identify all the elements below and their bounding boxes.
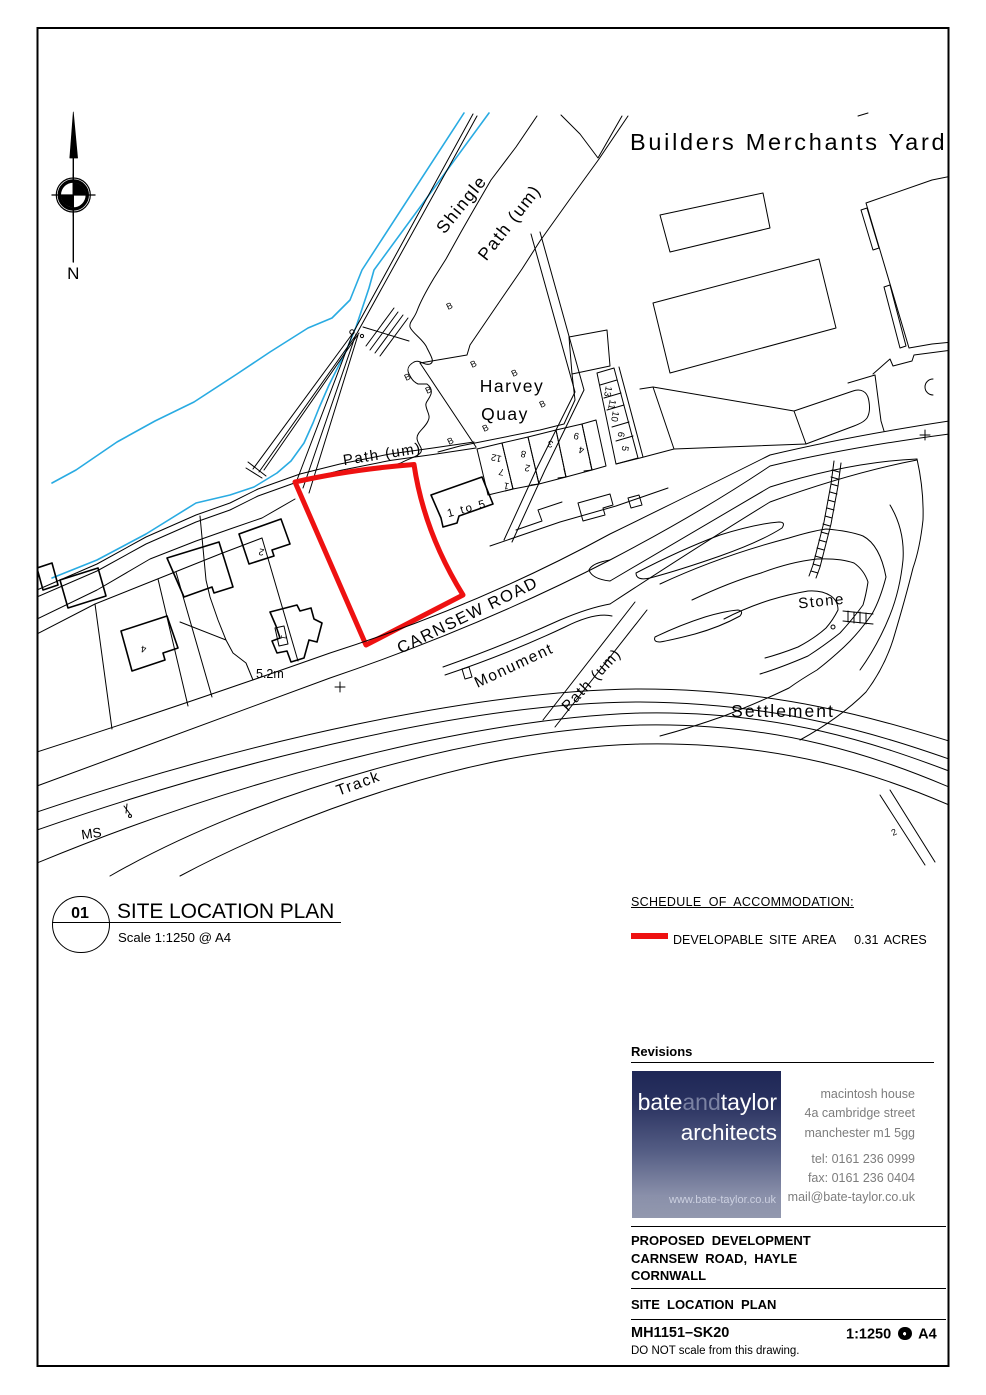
svg-text:11: 11: [605, 399, 618, 411]
svg-text:Monument: Monument: [472, 640, 556, 691]
svg-text:2: 2: [258, 546, 265, 558]
svg-text:B: B: [424, 384, 434, 396]
svg-text:Track: Track: [334, 768, 383, 800]
svg-text:1: 1: [279, 634, 290, 641]
svg-text:13: 13: [601, 385, 614, 397]
svg-text:B: B: [469, 358, 479, 370]
svg-text:2: 2: [890, 827, 899, 838]
svg-text:Harvey: Harvey: [480, 376, 544, 396]
svg-text:1: 1: [503, 480, 510, 492]
svg-text:5: 5: [619, 445, 631, 452]
svg-text:MS: MS: [80, 825, 102, 843]
svg-text:N: N: [67, 264, 79, 283]
svg-text:B: B: [445, 300, 455, 312]
svg-text:8: 8: [520, 448, 527, 460]
svg-text:4: 4: [140, 643, 147, 655]
svg-text:9: 9: [573, 430, 580, 442]
svg-text:10: 10: [608, 410, 621, 422]
svg-text:7: 7: [498, 466, 505, 478]
svg-text:4: 4: [578, 444, 585, 456]
svg-text:Path (um): Path (um): [474, 181, 545, 264]
svg-text:12: 12: [490, 451, 503, 464]
svg-text:Path (um): Path (um): [558, 645, 625, 715]
svg-text:5.2m: 5.2m: [256, 667, 284, 681]
svg-text:3: 3: [547, 438, 554, 450]
svg-text:6: 6: [615, 431, 627, 438]
svg-text:CARNSEW ROAD: CARNSEW ROAD: [394, 574, 541, 658]
svg-text:2: 2: [524, 462, 531, 474]
svg-text:B: B: [538, 398, 548, 410]
svg-text:Quay: Quay: [481, 404, 529, 424]
svg-text:Builders Merchants Yard: Builders Merchants Yard: [630, 129, 947, 155]
svg-text:1 to 5: 1 to 5: [446, 498, 488, 520]
